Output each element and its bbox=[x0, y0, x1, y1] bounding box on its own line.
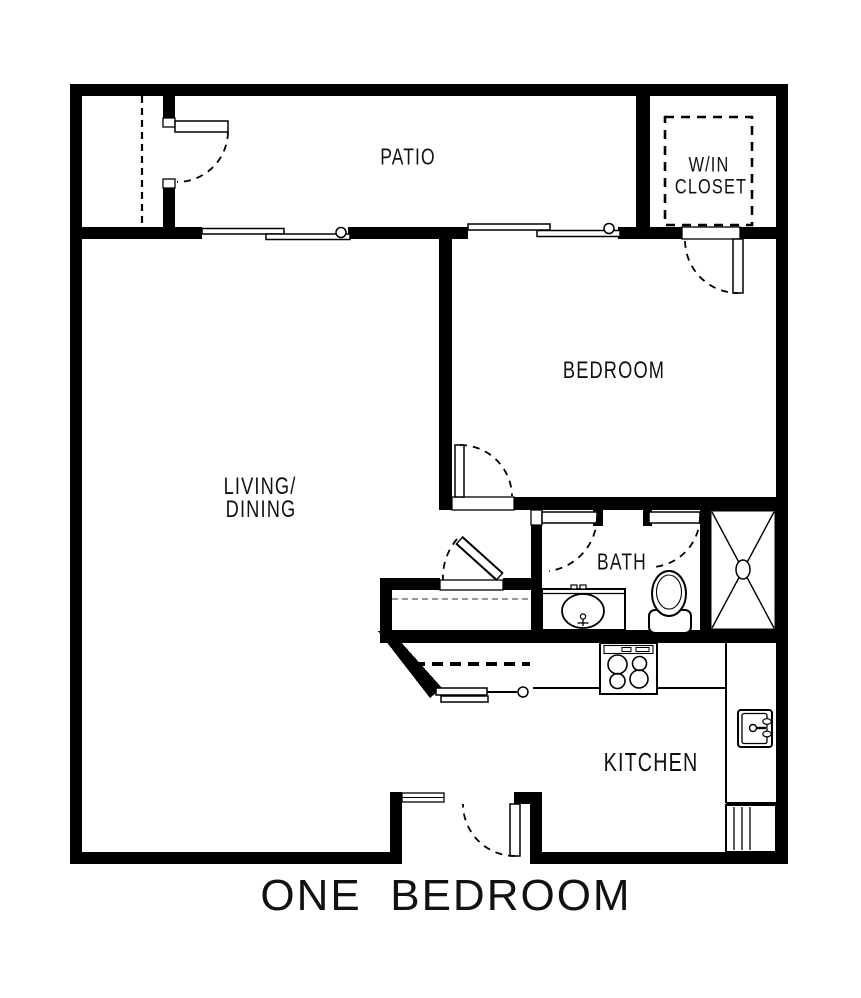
wall-bedroom-bottom-main bbox=[514, 497, 788, 510]
range-control-knob bbox=[636, 648, 649, 652]
door-leaf bbox=[733, 239, 743, 293]
bath-toilet-door bbox=[649, 512, 700, 567]
entry-door bbox=[463, 804, 520, 856]
sink-faucet-handle bbox=[763, 731, 771, 737]
door-leaf bbox=[649, 512, 700, 523]
door-swing-arc bbox=[463, 804, 515, 856]
wall-outer-top bbox=[70, 84, 788, 96]
wall-entry-alcove-left bbox=[390, 792, 402, 864]
sink-faucet-base bbox=[750, 725, 757, 732]
entry-sidelight bbox=[402, 793, 444, 802]
pantry-bypass-door bbox=[436, 687, 528, 702]
door-leaf bbox=[542, 512, 597, 523]
vanity-faucet-handle bbox=[571, 585, 577, 589]
sink-faucet-handle bbox=[763, 719, 771, 725]
wall-wincloset-bottom-right bbox=[740, 227, 776, 239]
door-swing-arc bbox=[443, 539, 457, 580]
storage-door-jamb-bottom bbox=[163, 179, 175, 188]
bath-door-jamb bbox=[531, 510, 542, 525]
wall-wincloset-left bbox=[636, 84, 650, 239]
bedroom-door-sill bbox=[452, 497, 514, 510]
door-leaf bbox=[455, 445, 464, 497]
wall-closet-top-b bbox=[503, 578, 542, 590]
slider-panel bbox=[202, 229, 284, 235]
bath-fixtures bbox=[542, 510, 776, 633]
shower-stall bbox=[710, 510, 776, 630]
walkin-closet-door bbox=[685, 239, 743, 293]
wincloset-door-sill bbox=[682, 227, 740, 239]
slider-panel bbox=[468, 224, 550, 230]
floor-plan-page: PATIO W/IN CLOSET BEDROOM LIVING/ DINING… bbox=[0, 0, 861, 998]
hall-closet-door bbox=[443, 539, 500, 580]
shower-drain bbox=[736, 560, 750, 579]
wall-patio-bottom-a bbox=[70, 227, 202, 239]
vanity-sink bbox=[542, 585, 625, 630]
wall-storage-right-upper bbox=[163, 84, 175, 118]
sliding-glass-door-living bbox=[202, 228, 350, 240]
wall-bedroom-left bbox=[439, 227, 452, 510]
door-swing-arc bbox=[685, 241, 738, 293]
wall-outer-right bbox=[776, 84, 788, 864]
bypass-panel bbox=[436, 688, 487, 695]
storage-door bbox=[175, 121, 228, 182]
slider-handle bbox=[604, 224, 614, 234]
sliding-glass-door-bedroom bbox=[468, 224, 620, 237]
toilet bbox=[649, 571, 691, 633]
door-swing-arc bbox=[177, 132, 228, 182]
bedroom-label: BEDROOM bbox=[563, 359, 665, 383]
walk-in-closet-label-line2: CLOSET bbox=[675, 176, 747, 198]
wall-bottom-right bbox=[530, 852, 788, 864]
kitchen-sink bbox=[738, 710, 772, 747]
plan-title: ONE BEDROOM bbox=[260, 874, 631, 918]
wall-wincloset-bottom-left bbox=[648, 227, 682, 239]
storage-door-jamb-top bbox=[163, 118, 175, 127]
door-swing-arc bbox=[460, 445, 512, 496]
bath-vanity-door bbox=[542, 512, 597, 571]
wall-bottom-left bbox=[70, 852, 402, 864]
appliance-cabinet bbox=[726, 805, 776, 852]
bypass-handle bbox=[518, 687, 528, 697]
kitchen-label: KITCHEN bbox=[604, 749, 699, 775]
wall-entry-alcove-top-pier bbox=[514, 792, 542, 804]
vanity-faucet-handle bbox=[580, 585, 586, 589]
bypass-panel bbox=[441, 696, 488, 702]
range-control-knob bbox=[622, 648, 631, 652]
bath-label: BATH bbox=[597, 551, 647, 574]
walk-in-closet-label-line1: W/IN bbox=[689, 154, 730, 176]
door-swing-arc bbox=[654, 517, 700, 567]
bedroom-door bbox=[455, 445, 512, 497]
living-dining-label-line2: DINING bbox=[226, 498, 297, 522]
closet-door-sill bbox=[440, 580, 503, 590]
door-leaf bbox=[175, 121, 228, 132]
wall-kitchen-top bbox=[380, 630, 788, 643]
wall-outer-left bbox=[70, 84, 82, 864]
slider-handle bbox=[336, 228, 346, 238]
door-leaf bbox=[510, 804, 520, 856]
door-swing-arc bbox=[549, 517, 597, 571]
patio-label: PATIO bbox=[380, 146, 436, 169]
wall-bedroom-bottom-stub bbox=[439, 497, 452, 510]
range-cooktop bbox=[600, 643, 657, 694]
door-leaf-face bbox=[460, 541, 499, 576]
